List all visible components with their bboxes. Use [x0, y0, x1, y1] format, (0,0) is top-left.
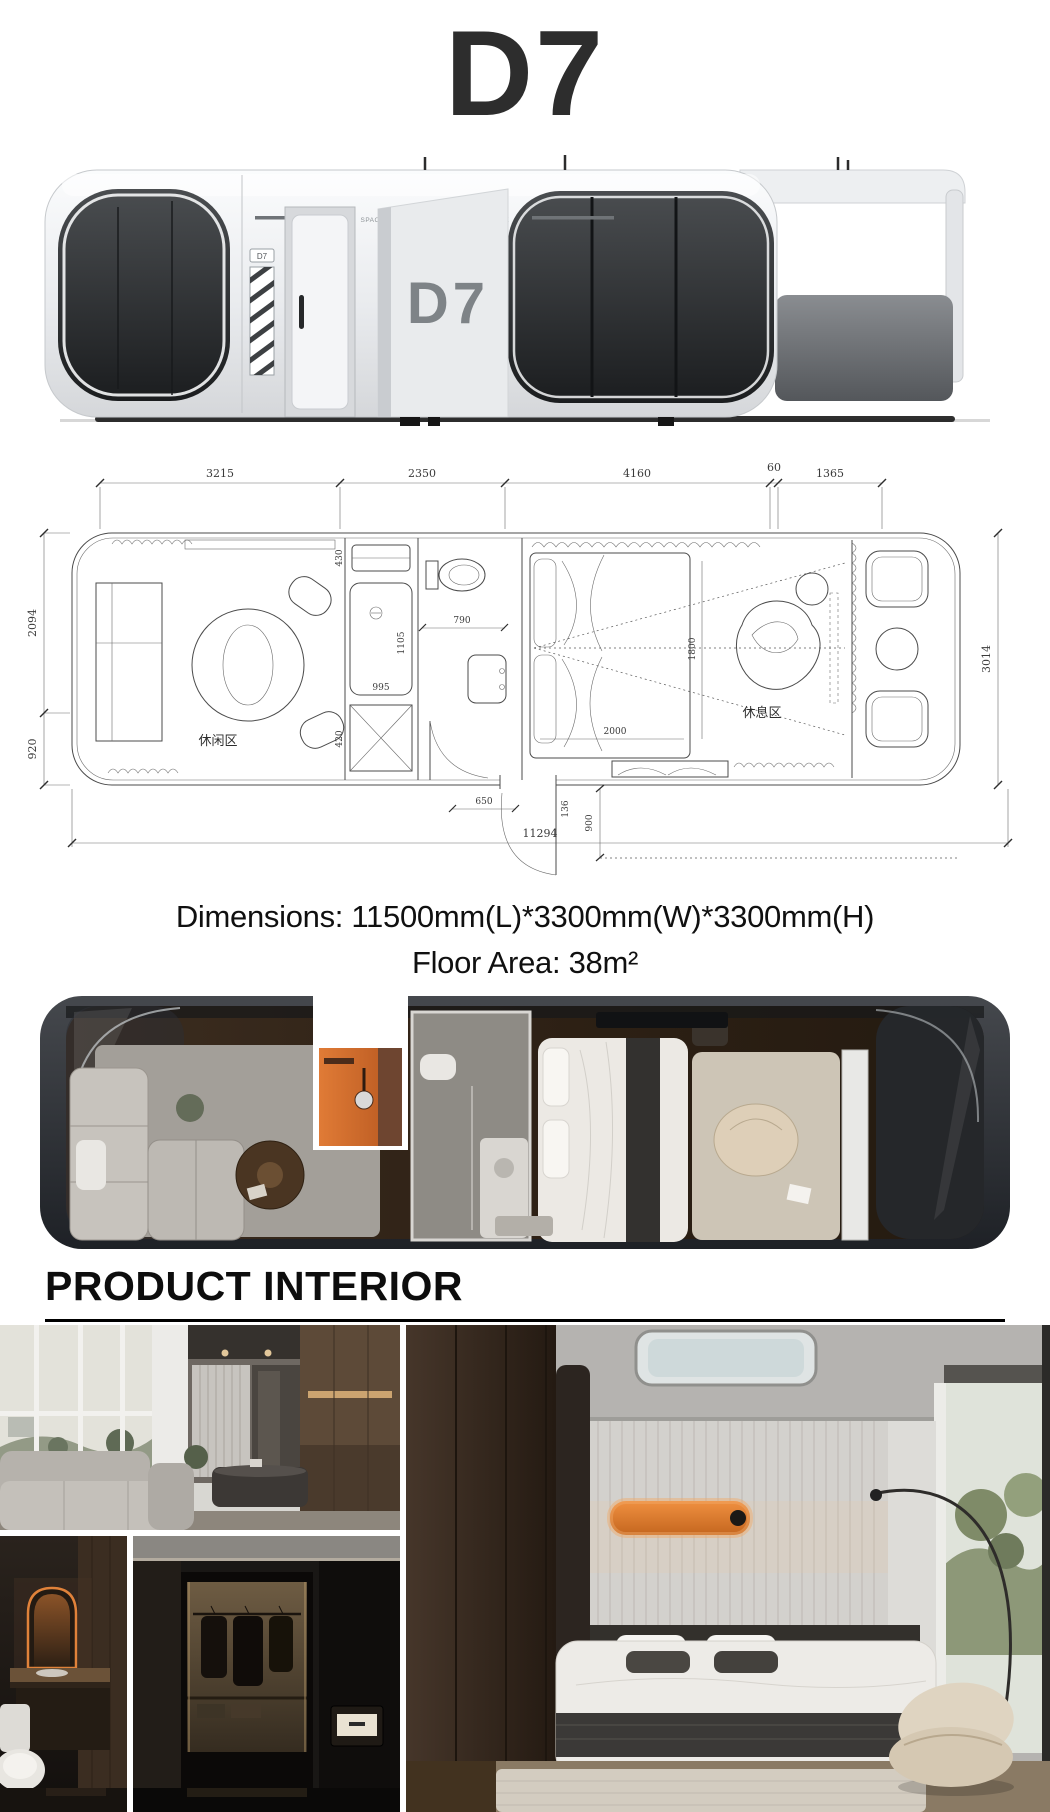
- bedroom-zone: 2000 1800: [530, 543, 845, 759]
- planter-plan: [612, 761, 728, 777]
- entry-door: [285, 207, 355, 417]
- interior-heading-section: PRODUCT INTERIOR: [0, 1255, 1050, 1325]
- dim-top-4: 60: [767, 461, 781, 474]
- dim-right-label: 3014: [980, 645, 993, 673]
- photo-hallway-closet: [133, 1536, 400, 1812]
- dim-bed-l: 2000: [604, 727, 627, 737]
- bathroom-top: [412, 1012, 530, 1240]
- coil-bottom-right: [734, 763, 834, 767]
- dim-left-2: 920: [26, 739, 39, 760]
- curtain-coil: [112, 540, 192, 544]
- photo-bedroom: [406, 1325, 1050, 1812]
- heading-rule: [45, 1319, 1005, 1322]
- floorplan-figure: 3215 2350 4160 60 1365 2094 920 3014 112…: [0, 443, 1050, 888]
- dim-cabinet: 420: [335, 730, 345, 747]
- product-page: { "page": { "title": "D7" }, "exterior":…: [0, 0, 1050, 1812]
- sphere-lamp: [730, 1510, 746, 1526]
- capsule-exterior-illustration: SPACE CABIN ACCOMMODATION MODULE D7 D7: [0, 145, 1050, 443]
- dim-chain-left: 2094 920: [26, 529, 70, 789]
- toilet-top: [420, 1054, 456, 1080]
- plant-top: [176, 1094, 204, 1122]
- exterior-figure: SPACE CABIN ACCOMMODATION MODULE D7 D7: [0, 145, 1050, 443]
- topdown-render: [40, 990, 1010, 1255]
- dim-bottom-label: 11294: [523, 827, 558, 840]
- dim-chain-top: 3215 2350 4160 60 1365: [96, 461, 886, 529]
- living-zone: 休闲区: [96, 540, 348, 773]
- led-strip: [133, 1558, 400, 1561]
- dim-door: 900: [585, 814, 595, 831]
- photo-bathroom: [0, 1536, 127, 1812]
- hall-ceiling: [133, 1536, 400, 1558]
- lounge-chair-plan: [736, 601, 820, 689]
- bedroom-photo: [406, 1325, 1050, 1812]
- dim-right: 3014: [980, 529, 1002, 789]
- chair-plan: [283, 571, 336, 621]
- dim-entry: 650: [475, 797, 492, 807]
- door-handle: [299, 295, 304, 329]
- dim-top-1: 3215: [206, 467, 234, 480]
- interior-heading: PRODUCT INTERIOR: [45, 1263, 1005, 1310]
- interior-photo-grid: [0, 1325, 1050, 1812]
- side-table-plan: [796, 573, 828, 605]
- logo-panel: D7: [378, 189, 508, 417]
- display-cabinet: [319, 1561, 400, 1812]
- pillow-plan: [534, 559, 556, 647]
- balcony-zone: [852, 540, 928, 778]
- sofa-plan: [96, 583, 162, 741]
- bed-top: [538, 1038, 688, 1242]
- terrace-railing: [775, 295, 953, 401]
- counter-plan: [185, 540, 335, 549]
- arc-lamp-head: [870, 1489, 882, 1501]
- topdown-render-figure: [0, 990, 1050, 1255]
- utility-zone: 430 1105 995 420: [335, 545, 412, 771]
- pillow-plan-2: [534, 655, 556, 743]
- dim-left-1: 2094: [26, 609, 39, 637]
- doormat-top: [495, 1216, 553, 1236]
- photo-living-room: [0, 1325, 400, 1530]
- specs-section: Dimensions: 11500mm(L)*3300mm(W)*3300mm(…: [0, 888, 1050, 990]
- page-title: D7: [445, 12, 605, 134]
- hazard-panel-label: D7: [257, 252, 268, 261]
- arched-mirror: [28, 1588, 76, 1668]
- partition-walls: [345, 538, 522, 780]
- bathroom-zone: 790: [419, 559, 508, 780]
- orange-shower-room: [319, 1048, 402, 1146]
- toilet-tank-plan: [426, 561, 438, 589]
- bed-throw: [556, 1713, 936, 1757]
- entry-door-plan: [500, 773, 556, 875]
- coffee-table-top: [236, 1141, 304, 1209]
- kitchen-cabinetry: [300, 1325, 400, 1530]
- balcony-table-plan: [876, 628, 918, 670]
- round-table-plan: [192, 609, 304, 721]
- left-wall: [133, 1561, 181, 1812]
- mirror-panel-top: [842, 1050, 868, 1240]
- curtain-coil-bed: [532, 543, 760, 548]
- dim-washer: 430: [335, 549, 345, 566]
- sink-plan: [468, 655, 506, 703]
- dim-top-2: 2350: [408, 467, 436, 480]
- toilet-plan: [439, 559, 485, 591]
- hallway-closet-photo: [133, 1536, 400, 1812]
- title-section: D7: [0, 0, 1050, 145]
- dim-step: 136: [561, 800, 571, 817]
- rest-zone: 休息区: [736, 573, 828, 721]
- living-room-photo: [0, 1325, 400, 1530]
- left-panoramic-window: [58, 189, 230, 401]
- dim-bed-w: 1800: [688, 637, 698, 660]
- dim-top-3: 4160: [623, 467, 651, 480]
- skylight: [636, 1331, 816, 1385]
- tv-console-top: [596, 1012, 728, 1028]
- floorplan-drawing: 3215 2350 4160 60 1365 2094 920 3014 112…: [0, 443, 1050, 888]
- dim-bath: 790: [453, 616, 470, 626]
- orange-led-niche: [610, 1501, 750, 1535]
- right-glass-end: [876, 1006, 984, 1239]
- closet-niche: [181, 1572, 313, 1788]
- capsule-logo: D7: [407, 271, 489, 336]
- roof-antennas: [425, 155, 848, 170]
- dim-bottom: 11294: [68, 789, 1012, 847]
- rest-zone-label: 休息区: [742, 705, 781, 721]
- dim-shower-w: 995: [372, 683, 389, 693]
- right-panoramic-window: [508, 191, 774, 403]
- dim-shower-l: 1105: [397, 631, 407, 654]
- bathroom-photo: [0, 1536, 127, 1812]
- curtain-coil-bottom: [108, 769, 178, 773]
- leisure-zone-label: 休闲区: [198, 734, 237, 749]
- specs-floor-area: Floor Area: 38m²: [0, 940, 1050, 986]
- dim-top-5: 1365: [816, 467, 844, 480]
- specs-dimensions: Dimensions: 11500mm(L)*3300mm(W)*3300mm(…: [0, 894, 1050, 940]
